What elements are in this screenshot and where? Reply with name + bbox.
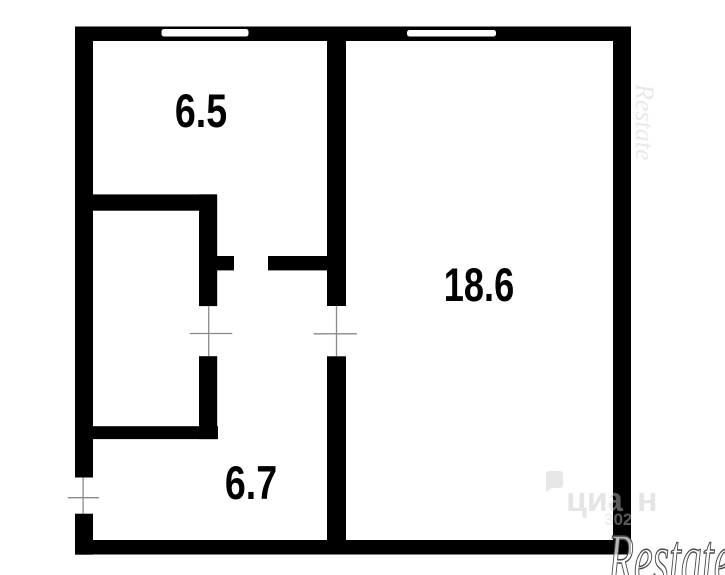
svg-text:Restate: Restate	[607, 519, 725, 575]
svg-text:18.6: 18.6	[444, 258, 514, 311]
svg-text:6.5: 6.5	[175, 85, 227, 138]
svg-text:н: н	[637, 481, 658, 519]
svg-text:Restate: Restate	[630, 83, 659, 161]
svg-text:6.7: 6.7	[225, 457, 277, 510]
